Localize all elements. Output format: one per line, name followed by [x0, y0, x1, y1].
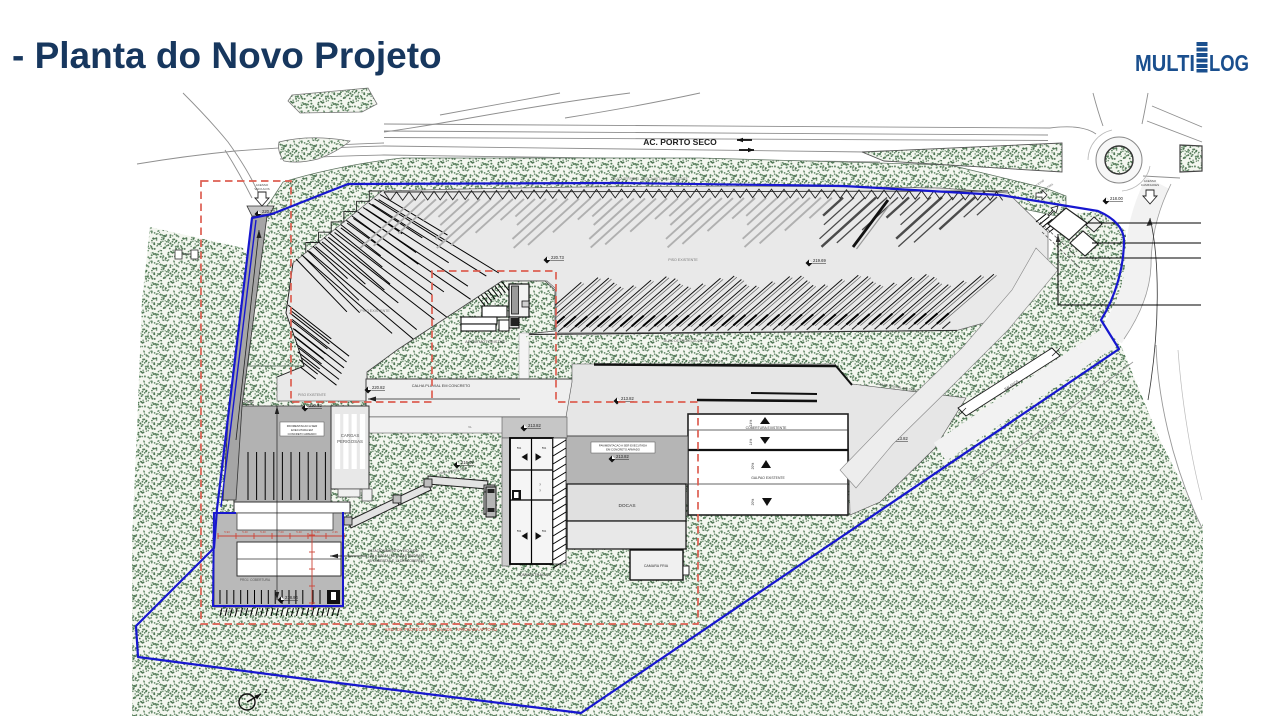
svg-text:CONCRETO ARMADO: CONCRETO ARMADO — [288, 432, 318, 436]
svg-text:MURO DE CONTENCAO: MURO DE CONTENCAO — [689, 359, 724, 363]
svg-text:14%: 14% — [749, 439, 753, 446]
svg-text:218.00: 218.00 — [1110, 196, 1123, 201]
svg-text:MURO DE PROTECAO DO TALUDE: MURO DE PROTECAO DO TALUDE — [664, 339, 717, 343]
svg-text:GRADIL A EXECUTAR: GRADIL A EXECUTAR — [223, 609, 254, 613]
svg-text:PISO EXISTENTE: PISO EXISTENTE — [360, 309, 390, 313]
svg-text:AC. PORTO SECO: AC. PORTO SECO — [643, 137, 717, 147]
svg-text:ADMINISTRACAO: ADMINISTRACAO — [517, 572, 550, 577]
svg-text:?: ? — [539, 483, 541, 487]
svg-text:5%: 5% — [542, 529, 547, 533]
svg-text:2.36: 2.36 — [332, 530, 338, 534]
svg-text:PROJ. COBERTURA: PROJ. COBERTURA — [240, 578, 271, 582]
svg-text:CAMARA FRIA: CAMARA FRIA — [644, 564, 669, 568]
svg-text:35 COBERTAS E 13 DESCOBERTAS: 35 COBERTAS E 13 DESCOBERTAS — [368, 559, 426, 563]
svg-text:220.82: 220.82 — [309, 403, 322, 408]
svg-text:213.82: 213.82 — [621, 396, 634, 401]
svg-text:APOIO MOTORISTAS: APOIO MOTORISTAS — [465, 339, 505, 344]
svg-text:216.87: 216.87 — [461, 460, 474, 465]
svg-text:CALHA PLUVIAL EM CONCRETO: CALHA PLUVIAL EM CONCRETO — [412, 384, 470, 388]
svg-text:ESTACIONAMENTO VEICULOS: ESTACIONAMENTO VEICULOS — [368, 549, 418, 553]
svg-text:CAMINHOES: CAMINHOES — [1141, 183, 1159, 187]
svg-text:DIVISA TERRENO - CERCA METALIC: DIVISA TERRENO - CERCA METALICA EXISTENT… — [612, 177, 688, 181]
svg-text:PISO EXISTENTE: PISO EXISTENTE — [298, 393, 327, 397]
svg-text:20%: 20% — [751, 499, 755, 506]
svg-text:213.82: 213.82 — [616, 454, 629, 459]
svg-text:213.82: 213.82 — [528, 423, 541, 428]
svg-text:5%: 5% — [517, 446, 522, 450]
svg-text:PISO EXISTENTE: PISO EXISTENTE — [668, 258, 698, 262]
svg-text:GALPAO EXISTENTE: GALPAO EXISTENTE — [751, 476, 785, 480]
svg-text:219.69: 219.69 — [813, 258, 826, 263]
svg-text:5.40: 5.40 — [314, 530, 320, 534]
svg-text:PERIGOSAS: PERIGOSAS — [337, 439, 363, 444]
svg-text:5%: 5% — [517, 529, 522, 533]
svg-text:COBERTURA EXISTENTE: COBERTURA EXISTENTE — [746, 426, 788, 430]
svg-text:z: z — [264, 688, 268, 695]
svg-text:?: ? — [539, 489, 541, 493]
svg-text:5.40: 5.40 — [296, 530, 302, 534]
svg-text:CARGAS: CARGAS — [341, 433, 360, 438]
svg-text:5.40: 5.40 — [242, 530, 248, 534]
svg-text:5.40: 5.40 — [260, 530, 266, 534]
svg-text:VL: VL — [468, 425, 472, 429]
svg-text:5%: 5% — [542, 446, 547, 450]
svg-text:220.73: 220.73 — [551, 255, 564, 260]
svg-text:DOCAS: DOCAS — [618, 503, 635, 509]
svg-text:218.94: 218.94 — [285, 595, 298, 600]
svg-text:220.82: 220.82 — [372, 385, 385, 390]
svg-text:(16) x 2.50 M / 48 VAGAS (PADR: (16) x 2.50 M / 48 VAGAS (PADRAO) — [368, 554, 424, 558]
svg-text:EM CONCRETO ARMADO: EM CONCRETO ARMADO — [606, 448, 641, 452]
svg-text:AREA DE PROTECAO DO TALUDE - A: AREA DE PROTECAO DO TALUDE - APROVADA AP… — [385, 627, 498, 632]
svg-text:5.93: 5.93 — [224, 530, 230, 534]
svg-text:20%: 20% — [751, 463, 755, 470]
svg-text:7.00: 7.00 — [278, 530, 284, 534]
svg-text:VEICULOS: VEICULOS — [254, 187, 269, 191]
